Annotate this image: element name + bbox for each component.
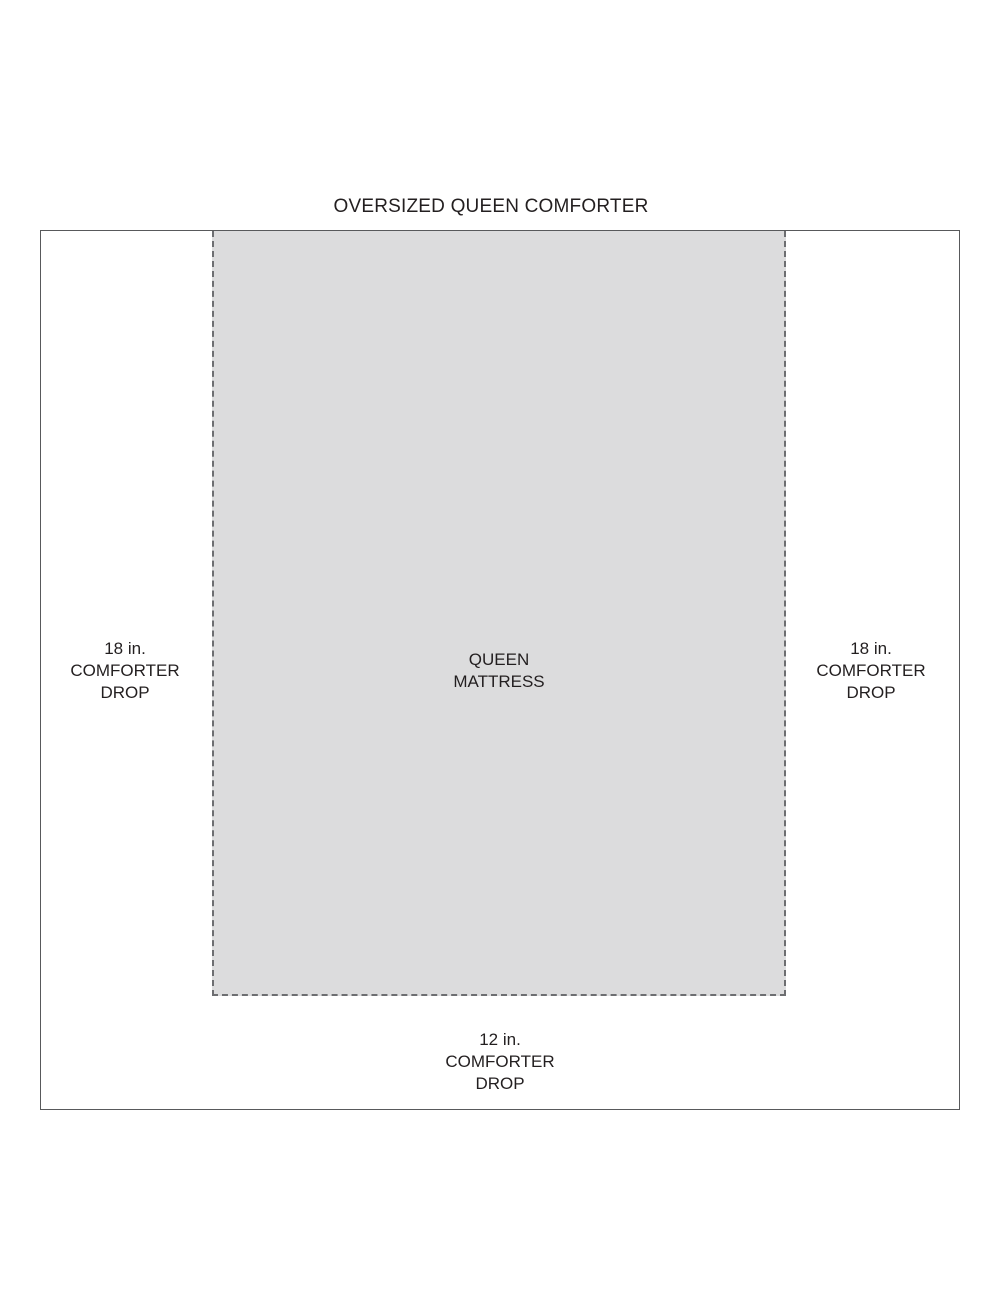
right-drop-label-line3: DROP	[816, 682, 925, 704]
diagram-title: OVERSIZED QUEEN COMFORTER	[333, 196, 648, 218]
left-drop-measurement: 18 in.	[70, 638, 179, 660]
bottom-drop-label-line2: COMFORTER	[445, 1051, 554, 1073]
right-drop-measurement: 18 in.	[816, 638, 925, 660]
right-drop-label: 18 in. COMFORTER DROP	[816, 638, 925, 704]
mattress-label: QUEEN MATTRESS	[453, 649, 544, 693]
left-drop-label: 18 in. COMFORTER DROP	[70, 638, 179, 704]
mattress-area	[212, 231, 786, 996]
bottom-drop-label: 12 in. COMFORTER DROP	[445, 1029, 554, 1095]
left-drop-label-line2: COMFORTER	[70, 660, 179, 682]
mattress-label-line1: QUEEN	[453, 649, 544, 671]
mattress-label-line2: MATTRESS	[453, 671, 544, 693]
right-drop-label-line2: COMFORTER	[816, 660, 925, 682]
bottom-drop-label-line3: DROP	[445, 1073, 554, 1095]
left-drop-label-line3: DROP	[70, 682, 179, 704]
bottom-drop-measurement: 12 in.	[445, 1029, 554, 1051]
comforter-size-diagram: OVERSIZED QUEEN COMFORTER QUEEN MATTRESS…	[0, 0, 1000, 1313]
